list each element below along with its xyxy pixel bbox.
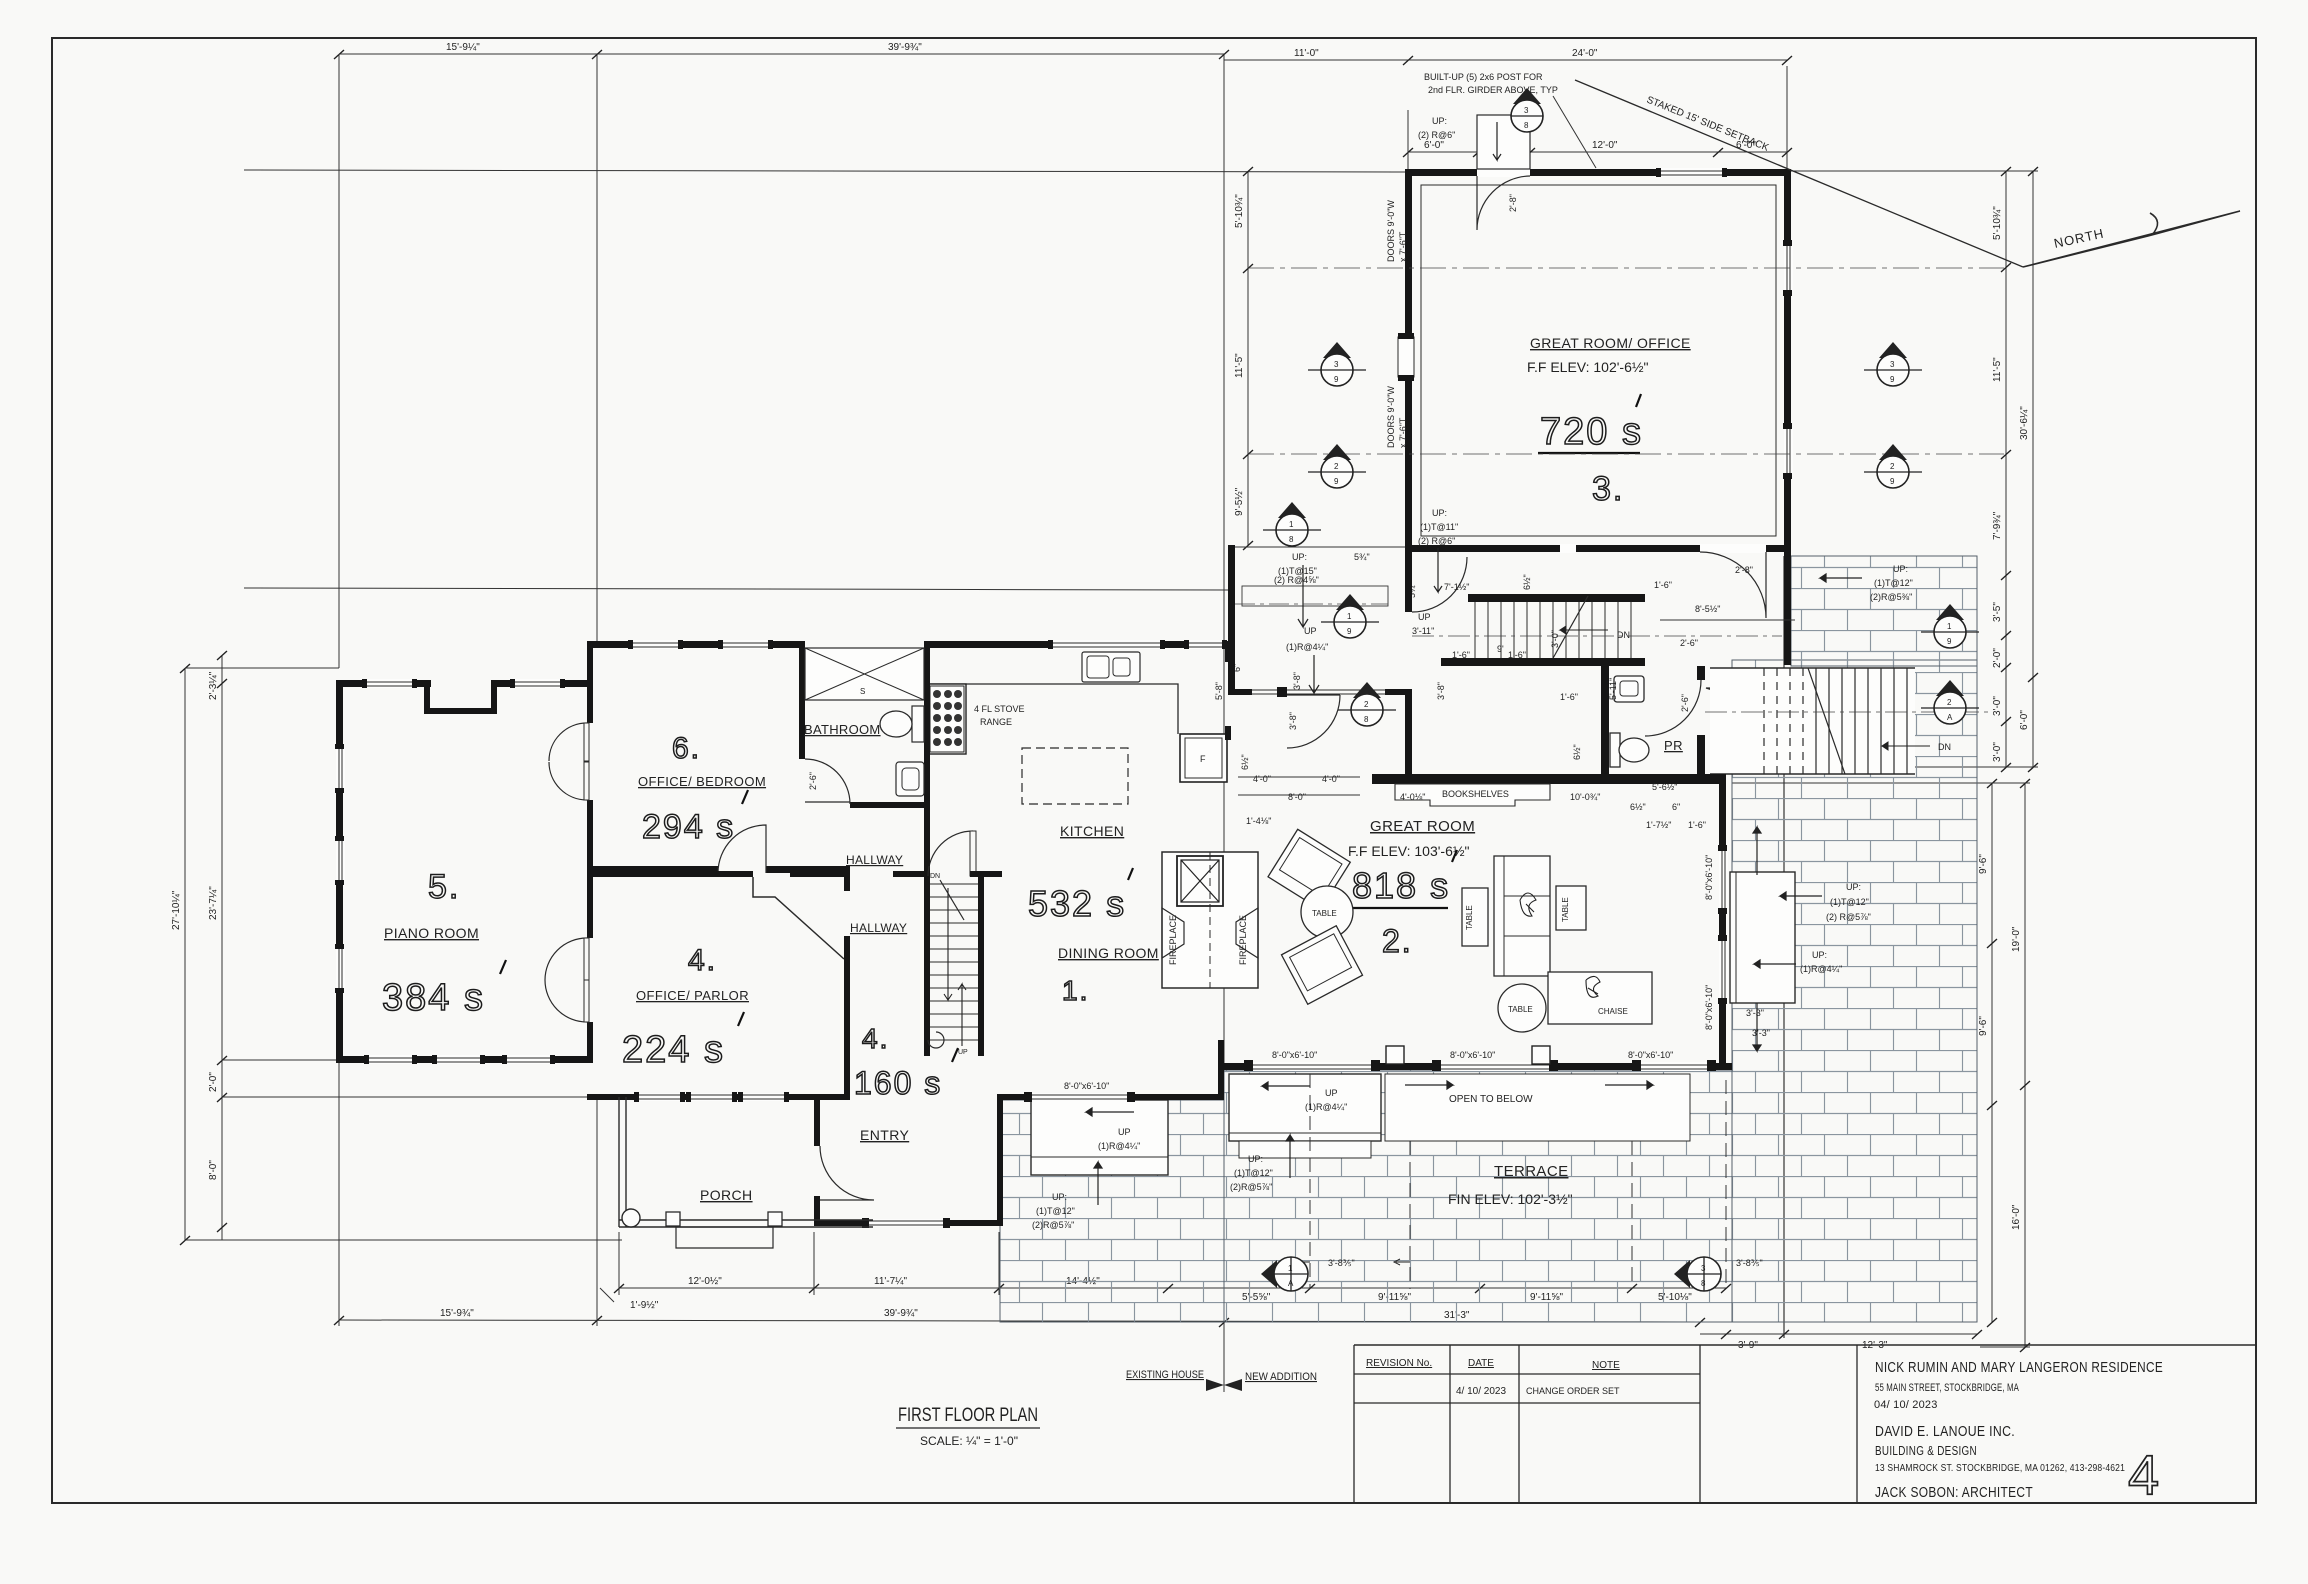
svg-text:TABLE: TABLE xyxy=(1561,897,1570,922)
svg-text:BUILDING & DESIGN: BUILDING & DESIGN xyxy=(1875,1444,1977,1458)
svg-text:OFFICE/ PARLOR: OFFICE/ PARLOR xyxy=(636,988,749,1003)
svg-text:11'-7¼": 11'-7¼" xyxy=(874,1275,908,1287)
svg-text:UP: UP xyxy=(1304,626,1317,636)
svg-text:F: F xyxy=(1200,754,1206,764)
svg-text:6'-0": 6'-0" xyxy=(1424,140,1444,151)
svg-text:DOORS 9'-0"W: DOORS 9'-0"W xyxy=(1386,386,1396,448)
svg-text:9: 9 xyxy=(1334,375,1339,384)
svg-text:2: 2 xyxy=(1364,700,1369,709)
svg-text:1'-4⅛": 1'-4⅛" xyxy=(1246,816,1271,826)
svg-text:5'-6½": 5'-6½" xyxy=(1652,782,1677,792)
svg-text:BATHROOM: BATHROOM xyxy=(804,722,881,737)
svg-text:384 s: 384 s xyxy=(382,977,485,1019)
svg-text:S: S xyxy=(860,687,865,696)
svg-text:(1)R@4¼": (1)R@4¼" xyxy=(1286,642,1328,652)
svg-text:(2)R@5⅜": (2)R@5⅜" xyxy=(1870,592,1912,602)
svg-text:DN: DN xyxy=(930,873,940,880)
svg-text:2'-8": 2'-8" xyxy=(1508,194,1518,212)
svg-text:7'-9¾": 7'-9¾" xyxy=(1992,511,2003,540)
svg-text:GREAT ROOM: GREAT ROOM xyxy=(1370,818,1475,835)
svg-text:2'-6": 2'-6" xyxy=(1680,638,1698,648)
svg-text:6'-0": 6'-0" xyxy=(2019,710,2030,730)
svg-text:1: 1 xyxy=(1288,1264,1293,1273)
svg-text:UP:: UP: xyxy=(1248,1154,1263,1164)
svg-text:3'-0": 3'-0" xyxy=(1992,696,2003,716)
svg-text:UP: UP xyxy=(1418,612,1431,622)
svg-text:UP:: UP: xyxy=(1846,882,1861,892)
svg-text:8'-0": 8'-0" xyxy=(208,1160,219,1180)
svg-text:A: A xyxy=(1947,713,1953,722)
svg-text:3: 3 xyxy=(1334,360,1339,369)
svg-text:8'-0"x6'-10": 8'-0"x6'-10" xyxy=(1704,985,1714,1030)
svg-text:(2)R@5⅞": (2)R@5⅞" xyxy=(1032,1220,1074,1230)
svg-text:8'-5½": 8'-5½" xyxy=(1695,604,1720,614)
svg-text:294 s: 294 s xyxy=(642,808,735,846)
svg-text:DATE: DATE xyxy=(1468,1358,1494,1369)
svg-text:3'-0": 3'-0" xyxy=(1992,742,2003,762)
svg-text:3.: 3. xyxy=(1592,470,1624,508)
svg-text:4.: 4. xyxy=(862,1023,889,1054)
svg-text:9: 9 xyxy=(1890,477,1895,486)
svg-text:9'-6": 9'-6" xyxy=(1978,1016,1989,1036)
svg-text:3: 3 xyxy=(1701,1264,1706,1273)
svg-text:9: 9 xyxy=(1890,375,1895,384)
svg-text:(1)T@12": (1)T@12" xyxy=(1234,1168,1273,1178)
svg-text:2nd FLR. GIRDER ABOVE, TYP: 2nd FLR. GIRDER ABOVE, TYP xyxy=(1428,85,1558,95)
svg-text:12'-0½": 12'-0½" xyxy=(688,1276,722,1287)
svg-text:HALLWAY: HALLWAY xyxy=(846,853,903,867)
svg-text:1: 1 xyxy=(1347,612,1352,621)
svg-text:224 s: 224 s xyxy=(622,1029,725,1071)
svg-text:UP:: UP: xyxy=(1893,564,1908,574)
svg-text:(1)T@12": (1)T@12" xyxy=(1874,578,1913,588)
svg-text:TABLE: TABLE xyxy=(1465,905,1474,930)
svg-text:KITCHEN: KITCHEN xyxy=(1060,823,1124,839)
svg-text:8'-0": 8'-0" xyxy=(1288,792,1306,802)
svg-text:F.F ELEV: 103'-6½": F.F ELEV: 103'-6½" xyxy=(1348,843,1470,859)
svg-text:9: 9 xyxy=(1947,637,1952,646)
svg-text:5'-8": 5'-8" xyxy=(1214,682,1224,700)
svg-text:3'-8⅗": 3'-8⅗" xyxy=(1328,1258,1355,1268)
svg-text:3'-0": 3'-0" xyxy=(1550,630,1560,648)
svg-text:9: 9 xyxy=(1347,627,1352,636)
svg-text:EXISTING HOUSE: EXISTING HOUSE xyxy=(1126,1369,1204,1381)
svg-text:(2) R@5⅞": (2) R@5⅞" xyxy=(1826,912,1871,922)
svg-text:FIN ELEV: 102'-3½": FIN ELEV: 102'-3½" xyxy=(1448,1191,1573,1207)
svg-text:UP: UP xyxy=(958,1049,968,1056)
svg-text:UP: UP xyxy=(1325,1088,1338,1098)
svg-text:8: 8 xyxy=(1289,535,1294,544)
svg-text:13 SHAMROCK ST. STOCKBRIDGE, M: 13 SHAMROCK ST. STOCKBRIDGE, MA 01262, 4… xyxy=(1875,1463,2125,1474)
svg-text:BUILT-UP (5) 2x6 POST FOR: BUILT-UP (5) 2x6 POST FOR xyxy=(1424,72,1543,82)
svg-text:9'-6": 9'-6" xyxy=(1978,854,1989,874)
svg-text:REVISION No.: REVISION No. xyxy=(1366,1358,1432,1369)
svg-text:4 FL STOVE: 4 FL STOVE xyxy=(974,704,1025,714)
svg-text:11'-0": 11'-0" xyxy=(1294,48,1319,59)
svg-text:3'-8": 3'-8" xyxy=(1436,682,1446,700)
svg-text:2'-6": 2'-6" xyxy=(808,772,818,790)
svg-text:55 MAIN STREET, STOCKBRIDGE, M: 55 MAIN STREET, STOCKBRIDGE, MA xyxy=(1875,1382,2019,1394)
svg-text:DN: DN xyxy=(1617,630,1630,640)
svg-text:8: 8 xyxy=(1524,121,1529,130)
svg-text:NEW ADDITION: NEW ADDITION xyxy=(1245,1371,1317,1383)
svg-text:ENTRY: ENTRY xyxy=(860,1127,909,1143)
svg-text:8: 8 xyxy=(1364,715,1369,724)
svg-text:UP:: UP: xyxy=(1432,116,1447,126)
svg-text:9': 9' xyxy=(1497,644,1504,654)
svg-text:7'-1½": 7'-1½" xyxy=(1444,582,1469,592)
svg-text:UP:: UP: xyxy=(1812,950,1827,960)
svg-text:DINING ROOM: DINING ROOM xyxy=(1058,945,1159,961)
svg-text:2'-0": 2'-0" xyxy=(208,1072,219,1092)
svg-text:9'-5½": 9'-5½" xyxy=(1234,487,1245,516)
svg-text:3: 3 xyxy=(1524,106,1529,115)
svg-text:4: 4 xyxy=(2128,1443,2159,1506)
svg-text:FIREPLACE: FIREPLACE xyxy=(1238,915,1248,965)
svg-text:HALLWAY: HALLWAY xyxy=(850,921,907,935)
svg-text:39'-9¾": 39'-9¾" xyxy=(888,42,922,53)
svg-text:PR: PR xyxy=(1664,738,1683,753)
svg-text:1'-6": 1'-6" xyxy=(1560,692,1578,702)
svg-text:(2)R@5⅞": (2)R@5⅞" xyxy=(1230,1182,1272,1192)
svg-text:F.F ELEV: 102'-6½": F.F ELEV: 102'-6½" xyxy=(1527,359,1649,375)
svg-text:160 s: 160 s xyxy=(854,1065,942,1101)
svg-text:3'-5": 3'-5" xyxy=(1992,602,2003,622)
svg-text:RANGE: RANGE xyxy=(980,717,1012,727)
svg-text:SCALE: ¼" = 1'-0": SCALE: ¼" = 1'-0" xyxy=(920,1434,1018,1448)
svg-text:(1)T@12": (1)T@12" xyxy=(1830,897,1869,907)
svg-text:30'-6¼": 30'-6¼" xyxy=(2018,406,2030,440)
svg-text:1.: 1. xyxy=(1062,975,1089,1006)
svg-text:1'-9½": 1'-9½" xyxy=(630,1300,659,1311)
svg-text:FIREPLACE: FIREPLACE xyxy=(1168,915,1178,965)
svg-text:24'-0": 24'-0" xyxy=(1572,48,1598,59)
svg-text:2'-6": 2'-6" xyxy=(1680,694,1690,712)
svg-text:FIRST FLOOR PLAN: FIRST FLOOR PLAN xyxy=(898,1405,1038,1426)
svg-text:11'-5": 11'-5" xyxy=(1234,353,1245,378)
svg-text:2'-0": 2'-0" xyxy=(1992,648,2003,668)
svg-text:4'-0": 4'-0" xyxy=(1253,774,1271,784)
svg-text:NICK RUMIN AND MARY LANGERON R: NICK RUMIN AND MARY LANGERON RESIDENCE xyxy=(1875,1359,2163,1376)
svg-text:15'-9¼": 15'-9¼" xyxy=(446,41,480,53)
svg-text:(1)R@4¼": (1)R@4¼" xyxy=(1800,964,1842,974)
svg-text:(1)T@12": (1)T@12" xyxy=(1036,1206,1075,1216)
svg-text:3: 3 xyxy=(1890,360,1895,369)
svg-text:5¾": 5¾" xyxy=(1354,552,1370,562)
svg-text:19'-0": 19'-0" xyxy=(2011,926,2022,952)
svg-text:3'-3": 3'-3" xyxy=(1752,1028,1770,1038)
svg-text:2: 2 xyxy=(1334,462,1339,471)
svg-text:6½": 6½" xyxy=(1240,754,1250,770)
svg-text:4/ 10/ 2023: 4/ 10/ 2023 xyxy=(1456,1386,1506,1397)
svg-text:6½": 6½" xyxy=(1572,744,1582,760)
svg-text:8'-0"x6'-10": 8'-0"x6'-10" xyxy=(1272,1050,1317,1060)
svg-text:UP:: UP: xyxy=(1432,508,1447,518)
svg-text:8'-0"x6'-10": 8'-0"x6'-10" xyxy=(1704,855,1714,900)
svg-text:2: 2 xyxy=(1890,462,1895,471)
svg-text:OPEN TO BELOW: OPEN TO BELOW xyxy=(1449,1094,1533,1105)
svg-text:6½": 6½" xyxy=(1630,802,1646,812)
svg-text:DAVID E. LANOUE INC.: DAVID E. LANOUE INC. xyxy=(1875,1423,2015,1440)
svg-text:4'-0⅛": 4'-0⅛" xyxy=(1400,792,1425,802)
svg-text:DOORS 9'-0"W: DOORS 9'-0"W xyxy=(1386,200,1396,262)
svg-text:1: 1 xyxy=(1289,520,1294,529)
svg-text:04/ 10/ 2023: 04/ 10/ 2023 xyxy=(1874,1399,1938,1411)
svg-text:2'-3¼": 2'-3¼" xyxy=(207,671,219,700)
svg-text:(1)R@4¼": (1)R@4¼" xyxy=(1305,1102,1347,1112)
svg-text:10'-0¾": 10'-0¾" xyxy=(1570,792,1600,802)
svg-text:8: 8 xyxy=(1701,1279,1706,1288)
svg-text:(2) R@4⅝": (2) R@4⅝" xyxy=(1274,575,1319,585)
svg-text:UP: UP xyxy=(1118,1127,1131,1137)
svg-text:CHANGE ORDER SET: CHANGE ORDER SET xyxy=(1526,1386,1620,1396)
svg-text:818 s: 818 s xyxy=(1352,865,1450,906)
svg-text:5.: 5. xyxy=(428,868,460,906)
svg-text:x 7'-6"T: x 7'-6"T xyxy=(1398,231,1408,262)
svg-text:4'-0": 4'-0" xyxy=(1322,774,1340,784)
svg-text:11'-5": 11'-5" xyxy=(1992,357,2003,382)
svg-text:6½": 6½" xyxy=(1522,574,1532,590)
svg-text:8'-0"x6'-10": 8'-0"x6'-10" xyxy=(1064,1081,1109,1091)
svg-text:TERRACE: TERRACE xyxy=(1494,1163,1568,1180)
svg-text:15'-9¾": 15'-9¾" xyxy=(440,1308,474,1319)
svg-text:A: A xyxy=(1288,1279,1294,1288)
svg-text:1'-7½": 1'-7½" xyxy=(1646,820,1671,830)
svg-text:6": 6" xyxy=(1672,802,1680,812)
svg-text:5'-11": 5'-11" xyxy=(1608,678,1618,700)
svg-text:UP:: UP: xyxy=(1292,552,1307,562)
svg-text:(1)R@4¼": (1)R@4¼" xyxy=(1098,1141,1140,1151)
svg-text:4.: 4. xyxy=(688,944,717,977)
svg-text:UP:: UP: xyxy=(1052,1192,1067,1202)
svg-text:3'-8⅗": 3'-8⅗" xyxy=(1736,1258,1763,1268)
svg-text:3'-11": 3'-11" xyxy=(1412,626,1434,636)
svg-text:2.: 2. xyxy=(1382,923,1413,959)
svg-text:8'-0"x6'-10": 8'-0"x6'-10" xyxy=(1450,1050,1495,1060)
svg-text:3'-8": 3'-8" xyxy=(1292,672,1302,690)
svg-text:8'-0"x6'-10": 8'-0"x6'-10" xyxy=(1628,1050,1673,1060)
svg-text:2: 2 xyxy=(1947,698,1952,707)
svg-text:39'-9¾": 39'-9¾" xyxy=(884,1308,918,1319)
svg-text:3'-3": 3'-3" xyxy=(1746,1008,1764,1018)
svg-text:27'-10¼": 27'-10¼" xyxy=(170,890,182,930)
svg-text:(2) R@6": (2) R@6" xyxy=(1418,130,1455,140)
svg-text:532 s: 532 s xyxy=(1028,883,1126,924)
svg-text:3'-8": 3'-8" xyxy=(1288,712,1298,730)
svg-text:JACK SOBON: ARCHITECT: JACK SOBON: ARCHITECT xyxy=(1875,1484,2033,1501)
svg-text:6.: 6. xyxy=(672,732,701,765)
svg-text:16'-0": 16'-0" xyxy=(2011,1204,2022,1230)
svg-text:1'-6": 1'-6" xyxy=(1688,820,1706,830)
svg-text:5'-10¾": 5'-10¾" xyxy=(1992,206,2003,240)
svg-text:GREAT ROOM/ OFFICE: GREAT ROOM/ OFFICE xyxy=(1530,335,1691,351)
svg-text:(1)T@11": (1)T@11" xyxy=(1420,522,1458,532)
svg-text:23'-7¼": 23'-7¼" xyxy=(207,886,219,920)
svg-text:CHAISE: CHAISE xyxy=(1598,1007,1628,1016)
svg-text:NOTE: NOTE xyxy=(1592,1360,1620,1371)
svg-text:TABLE: TABLE xyxy=(1508,1005,1533,1014)
svg-text:5'-10¾": 5'-10¾" xyxy=(1234,194,1245,228)
svg-text:PIANO ROOM: PIANO ROOM xyxy=(384,925,479,941)
svg-text:x 7'-6"T: x 7'-6"T xyxy=(1398,417,1408,448)
svg-text:PORCH: PORCH xyxy=(700,1187,753,1203)
svg-text:DN: DN xyxy=(1938,742,1951,752)
svg-text:1'-6": 1'-6" xyxy=(1654,580,1672,590)
svg-text:720 s: 720 s xyxy=(1540,411,1643,453)
svg-text:BOOKSHELVES: BOOKSHELVES xyxy=(1442,789,1509,799)
svg-text:TABLE: TABLE xyxy=(1312,909,1337,918)
svg-text:12'-0": 12'-0" xyxy=(1592,140,1618,151)
svg-text:1: 1 xyxy=(1947,622,1952,631)
svg-text:9: 9 xyxy=(1334,477,1339,486)
svg-text:(2) R@6": (2) R@6" xyxy=(1418,536,1455,546)
svg-text:OFFICE/ BEDROOM: OFFICE/ BEDROOM xyxy=(638,774,766,789)
svg-text:2'-8": 2'-8" xyxy=(1735,565,1753,575)
